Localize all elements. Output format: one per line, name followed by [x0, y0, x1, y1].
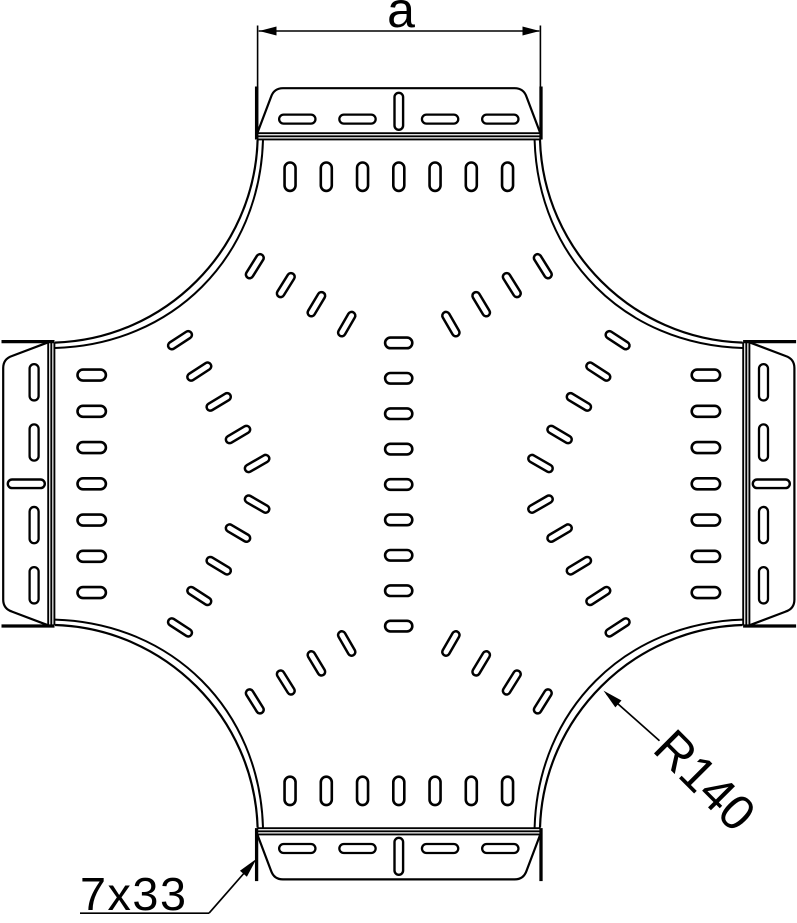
svg-text:a: a: [387, 0, 415, 38]
svg-text:7x33: 7x33: [80, 868, 187, 918]
